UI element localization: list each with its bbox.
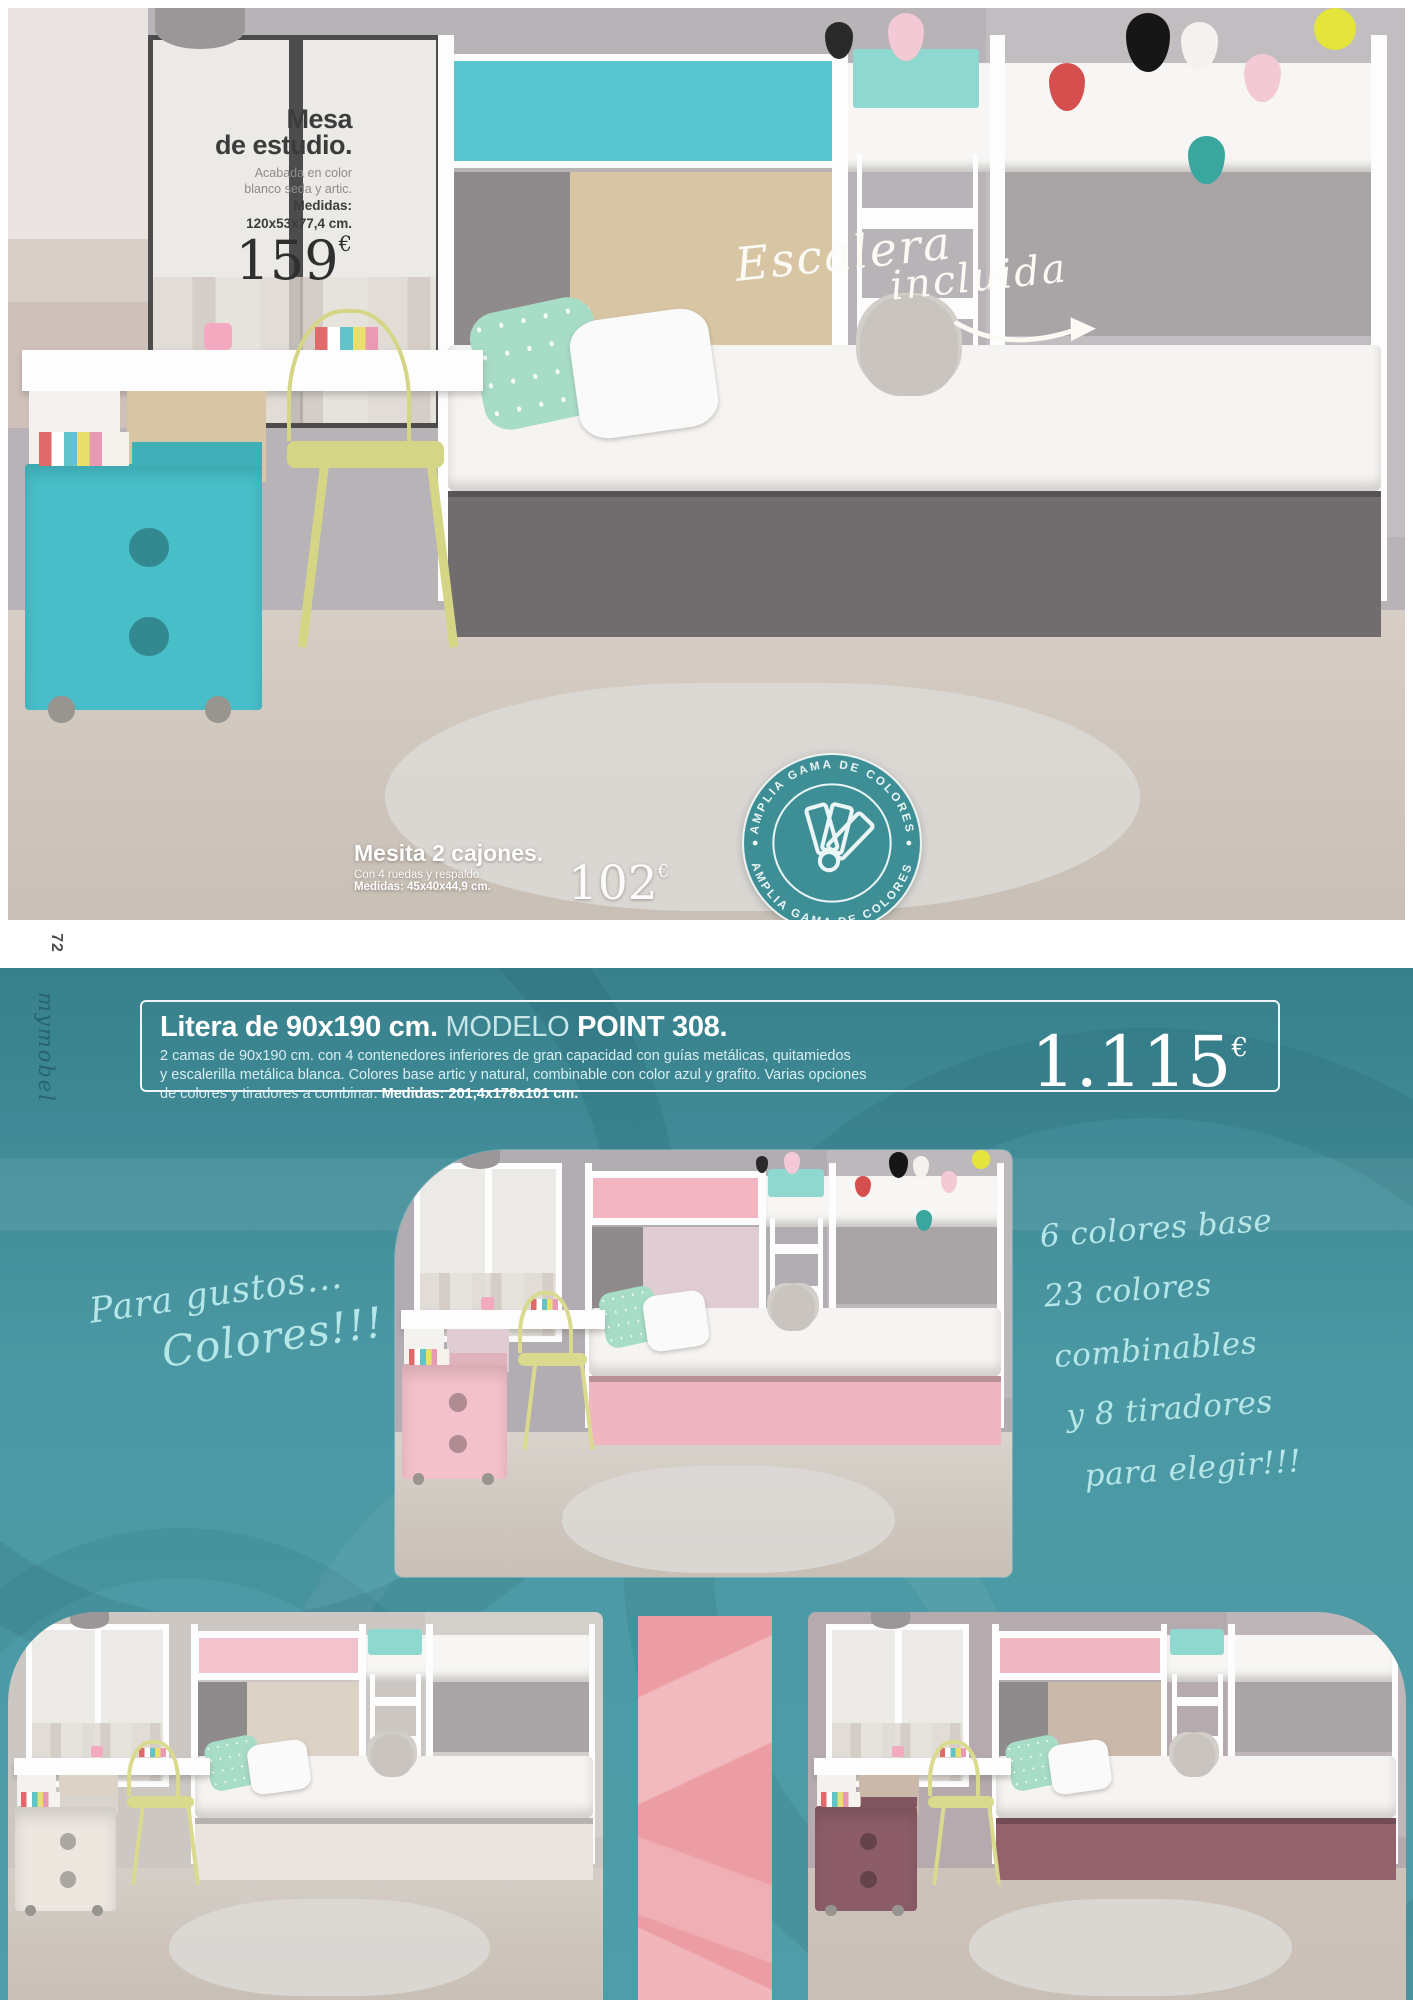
pink-room-photo (395, 1150, 1012, 1577)
page-number: 72 (47, 933, 65, 953)
mesa-medidas: Medidas: 120x53x77,4 cm. (200, 197, 352, 232)
brand-name: mymobel (34, 992, 58, 1172)
para-gustos-script: Para gustos... Colores!!! (87, 1249, 407, 1386)
room-scene-mauve (808, 1612, 1406, 2000)
euro-symbol: € (658, 861, 669, 882)
catalog-page: Mesa de estudio. Acabada en color blanco… (0, 0, 1413, 2000)
litera-price: 1.115€ (1031, 1002, 1248, 1108)
colores-script: 6 colores base 23 colores combinables y … (1038, 1186, 1358, 1508)
mesa-description: Acabada en color blanco seda y artic. (200, 166, 352, 197)
mauve-room-photo (808, 1612, 1406, 2000)
mesa-price: 159€ (200, 234, 352, 288)
mesa-title: Mesa de estudio. (200, 106, 352, 159)
colores-badge: AMPLIA GAMA DE COLORES AMPLIA GAMA DE CO… (741, 752, 923, 934)
top-room-photo: Mesa de estudio. Acabada en color blanco… (8, 8, 1405, 920)
mesita-price: 102€ (568, 856, 669, 911)
page-margin-band: 72 (0, 920, 1413, 968)
euro-symbol: € (339, 232, 352, 256)
mesita-info: Mesita 2 cajones. Con 4 ruedas y respald… (354, 840, 694, 893)
room-scene-white (8, 1612, 603, 2000)
mesa-estudio-info: Mesa de estudio. Acabada en color blanco… (200, 106, 352, 288)
white-room-photo (8, 1612, 603, 2000)
euro-symbol: € (1231, 1033, 1248, 1063)
litera-info-box: Litera de 90x190 cm. MODELO POINT 308. 2… (140, 1000, 1280, 1092)
teal-section: mymobel Litera de 90x190 cm. MODELO POIN… (0, 968, 1413, 2000)
room-scene-pink (395, 1150, 1012, 1577)
pink-divider-strip (638, 1616, 772, 2000)
